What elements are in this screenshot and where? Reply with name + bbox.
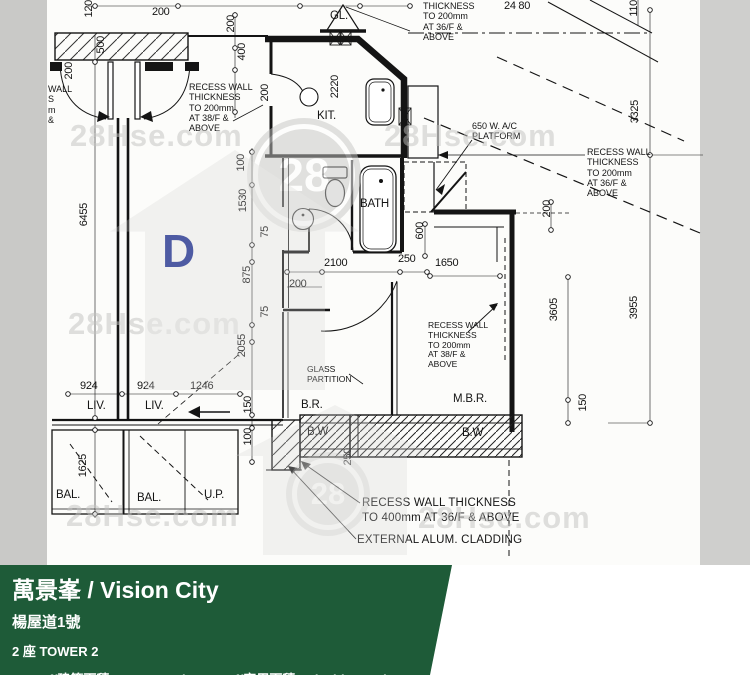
property-tower: 2 座 TOWER 2 xyxy=(12,641,472,660)
dimension-label: 200 xyxy=(260,84,271,101)
dimension-label: 150 xyxy=(578,394,589,411)
room-label: B.W xyxy=(462,427,483,440)
room-label: BAL. xyxy=(56,489,80,502)
room-label: LIV. xyxy=(145,400,164,413)
dimension-label: 1625 xyxy=(78,454,89,477)
dimension-label: 3955 xyxy=(629,296,640,319)
dimension-label: 200 xyxy=(64,62,75,79)
note-label: EXTERNAL ALUM. CLADDING xyxy=(357,533,522,548)
note-label: GLASS PARTITION xyxy=(307,365,352,385)
room-label: BATH xyxy=(360,198,389,211)
dimension-label: 1650 xyxy=(435,257,458,269)
note-label: THICKNESS TO 200mm AT 36/F & ABOVE xyxy=(423,1,475,42)
dimension-label: 924 xyxy=(80,380,97,392)
plan-labels-layer: RECESS WALL THICKNESS TO 200mm AT 38/F &… xyxy=(0,0,750,565)
room-label: B.R. xyxy=(301,399,323,412)
room-label: M.B.R. xyxy=(453,393,487,406)
dimension-label: 150 xyxy=(243,396,254,413)
dimension-label: 1530 xyxy=(238,189,249,212)
dimension-label: 75 xyxy=(260,226,271,238)
dimension-label: 200 xyxy=(542,200,553,217)
dimension-label: 400 xyxy=(237,43,248,60)
dimension-label: 6455 xyxy=(79,203,90,226)
property-address: 楊屋道1號 xyxy=(12,611,472,632)
property-info-panel: 萬景峯 / Vision City 楊屋道1號 2 座 TOWER 2 687s… xyxy=(0,565,472,675)
dimension-label: 200 xyxy=(289,278,306,290)
dimension-label: 500 xyxy=(96,36,107,53)
property-area: 687sqf(建築面積 Gross Area), 521 sqf(實用面積 Sa… xyxy=(12,669,472,675)
floorplan: RECESS WALL THICKNESS TO 200mm AT 38/F &… xyxy=(0,0,750,565)
room-label: KIT. xyxy=(317,110,336,123)
dimension-label: 75 xyxy=(260,306,271,318)
dimension-label: 2100 xyxy=(324,257,347,269)
dimension-label: 875 xyxy=(242,266,253,283)
dimension-label: 200 xyxy=(226,15,237,32)
note-label: RECESS WALL THICKNESS TO 200mm AT 38/F &… xyxy=(189,82,253,134)
dimension-label: 924 xyxy=(137,380,154,392)
dimension-label: 1246 xyxy=(190,380,213,392)
screenshot-root: RECESS WALL THICKNESS TO 200mm AT 38/F &… xyxy=(0,0,750,675)
dimension-label: 200 xyxy=(152,6,169,18)
room-label: GL. xyxy=(330,10,348,23)
dimension-label: 110 xyxy=(629,0,640,17)
dimension-label: 120 xyxy=(84,0,95,17)
note-label: RECESS WALL THICKNESS TO 200mm AT 36/F &… xyxy=(587,147,651,199)
footer-bar: 萬景峯 / Vision City 楊屋道1號 2 座 TOWER 2 687s… xyxy=(0,565,750,675)
dimension-label: 250 xyxy=(343,448,354,465)
room-label: B.W xyxy=(307,426,328,439)
dimension-label: 600 xyxy=(415,222,426,239)
note-label: RECESS WALL THICKNESS TO 400mm AT 36/F &… xyxy=(362,496,520,526)
dimension-label: 2220 xyxy=(330,75,341,98)
dimension-label: 100 xyxy=(236,154,247,171)
dimension-label: 3605 xyxy=(549,298,560,321)
room-label: LIV. xyxy=(87,400,106,413)
dimension-label: 250 xyxy=(398,253,415,265)
unit-label: D xyxy=(162,228,195,274)
dimension-label: 24 80 xyxy=(504,0,530,12)
note-label: RECESS WALL THICKNESS TO 200mm AT 38/F &… xyxy=(428,321,488,370)
dimension-label: 3325 xyxy=(630,100,641,123)
room-label: U.P. xyxy=(204,489,224,502)
room-label: BAL. xyxy=(137,492,161,505)
dimension-label: 100 xyxy=(243,428,254,445)
property-title: 萬景峯 / Vision City xyxy=(12,571,472,605)
note-label: WALL S m & xyxy=(48,84,72,125)
note-label: 650 W. A/C PLATFORM xyxy=(472,121,520,142)
dimension-label: 2055 xyxy=(237,334,248,357)
